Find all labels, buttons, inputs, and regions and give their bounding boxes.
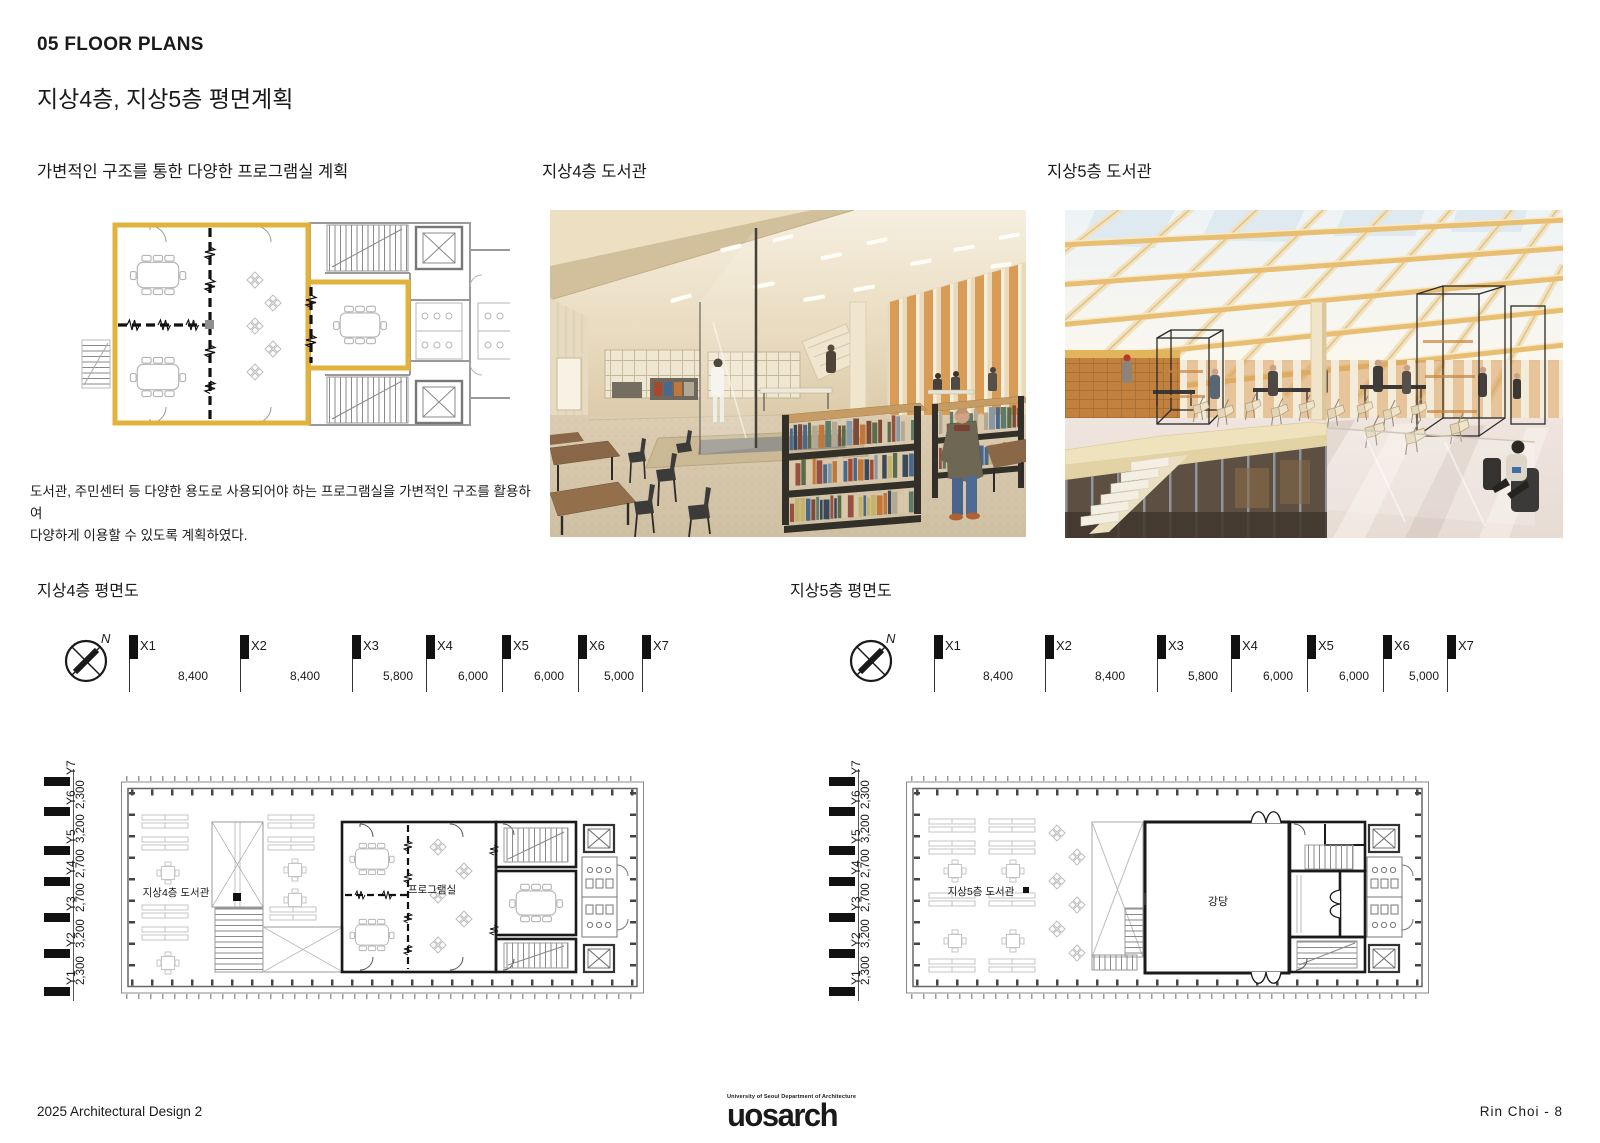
x-grid-dimension: 6,000 — [1339, 669, 1369, 683]
diagram-partition-junction — [205, 320, 214, 329]
y-grid-dimension: 2,700 — [75, 883, 87, 912]
y-grid-dimension: 2,300 — [860, 780, 872, 809]
x-grid-dimension: 5,000 — [604, 669, 634, 683]
page-section-title: 05 FLOOR PLANS — [37, 34, 204, 56]
x-grid-dimension: 6,000 — [458, 669, 488, 683]
x-grid-dimension: 8,400 — [1095, 669, 1125, 683]
stair-top-5f — [1305, 845, 1353, 869]
y-grid-floor5: Y7Y6Y5Y4Y3Y2Y12,3003,2002,7002,7003,2002… — [825, 765, 915, 1015]
y-grid-dimension: 3,200 — [860, 919, 872, 948]
north-arrow-floor5: N — [845, 630, 903, 688]
render-5f-title: 지상5층 도서관 — [1047, 158, 1152, 182]
y-grid-dimension: 2,300 — [75, 780, 87, 809]
x-grid-dimension: 8,400 — [983, 669, 1013, 683]
x-grid-dimension: 6,000 — [1263, 669, 1293, 683]
room-label-library-5f: 지상5층 도서관 — [948, 886, 1015, 898]
footer-credit: Rin Choi - 8 — [1480, 1104, 1563, 1119]
render-4f-title: 지상4층 도서관 — [542, 158, 647, 182]
x-grid-dimension: 6,000 — [534, 669, 564, 683]
room-label-library-4f: 지상4층 도서관 — [143, 887, 210, 899]
north-arrow-floor4: N — [60, 630, 118, 688]
y-grid-dimension: 2,700 — [860, 883, 872, 912]
x-grid-dimension: 5,000 — [1409, 669, 1439, 683]
y-grid-dimension: 2,700 — [75, 849, 87, 878]
y-grid-dimension: 2,700 — [860, 849, 872, 878]
y-grid-dimension: 3,200 — [75, 814, 87, 843]
left-end-window — [557, 358, 581, 410]
x-grid-dimension: 8,400 — [178, 669, 208, 683]
x-grid-floor5: X1X2X3X4X5X6X78,4008,4005,8006,0006,0005… — [925, 635, 1470, 697]
footer-logo: University of Seoul Department of Archit… — [727, 1094, 873, 1129]
footer-logo-wordmark: uosarch — [727, 1100, 873, 1131]
diagram-elevators — [416, 227, 462, 423]
render-4f-library-image — [550, 210, 1026, 537]
column — [850, 302, 866, 414]
plan-4f-title: 지상4층 평면도 — [37, 577, 139, 601]
footer-course: 2025 Architectural Design 2 — [37, 1104, 202, 1119]
y-grid-dimension: 3,200 — [75, 919, 87, 948]
concept-description: 도서관, 주민센터 등 다양한 용도로 사용되어야 하는 프로그램실을 가변적인… — [30, 481, 542, 547]
plan-5f-title: 지상5층 평면도 — [790, 577, 892, 601]
y-grid-dimension: 2,300 — [75, 956, 87, 985]
room-label-program: 프로그램실 — [408, 884, 456, 896]
room-label-auditorium: 강당 — [1208, 895, 1228, 908]
north-label: N — [101, 631, 111, 646]
render-5f-library-image — [1065, 210, 1563, 538]
concept-diagram — [80, 195, 510, 445]
concept-title: 가변적인 구조를 통한 다양한 프로그램실 계획 — [37, 158, 348, 182]
label-marker-square — [1023, 887, 1029, 893]
floor-plan-4f: 지상4층 도서관 프로그램실 — [120, 775, 645, 1000]
x-grid-dimension: 8,400 — [290, 669, 320, 683]
x-grid-dimension: 5,800 — [1188, 669, 1218, 683]
floor-plan-5f: 지상5층 도서관 강당 — [905, 775, 1430, 1000]
y-grid-floor4: Y7Y6Y5Y4Y3Y2Y12,3003,2002,7002,7003,2002… — [40, 765, 130, 1015]
north-label: N — [886, 631, 896, 646]
page-subtitle: 지상4층, 지상5층 평면계획 — [37, 80, 293, 114]
y-grid-dimension: 3,200 — [860, 814, 872, 843]
glass-balustrade — [1327, 428, 1535, 526]
x-grid-floor4: X1X2X3X4X5X6X78,4008,4005,8006,0006,0005… — [120, 635, 665, 697]
y-grid-dimension: 2,300 — [860, 956, 872, 985]
x-grid-dimension: 5,800 — [383, 669, 413, 683]
